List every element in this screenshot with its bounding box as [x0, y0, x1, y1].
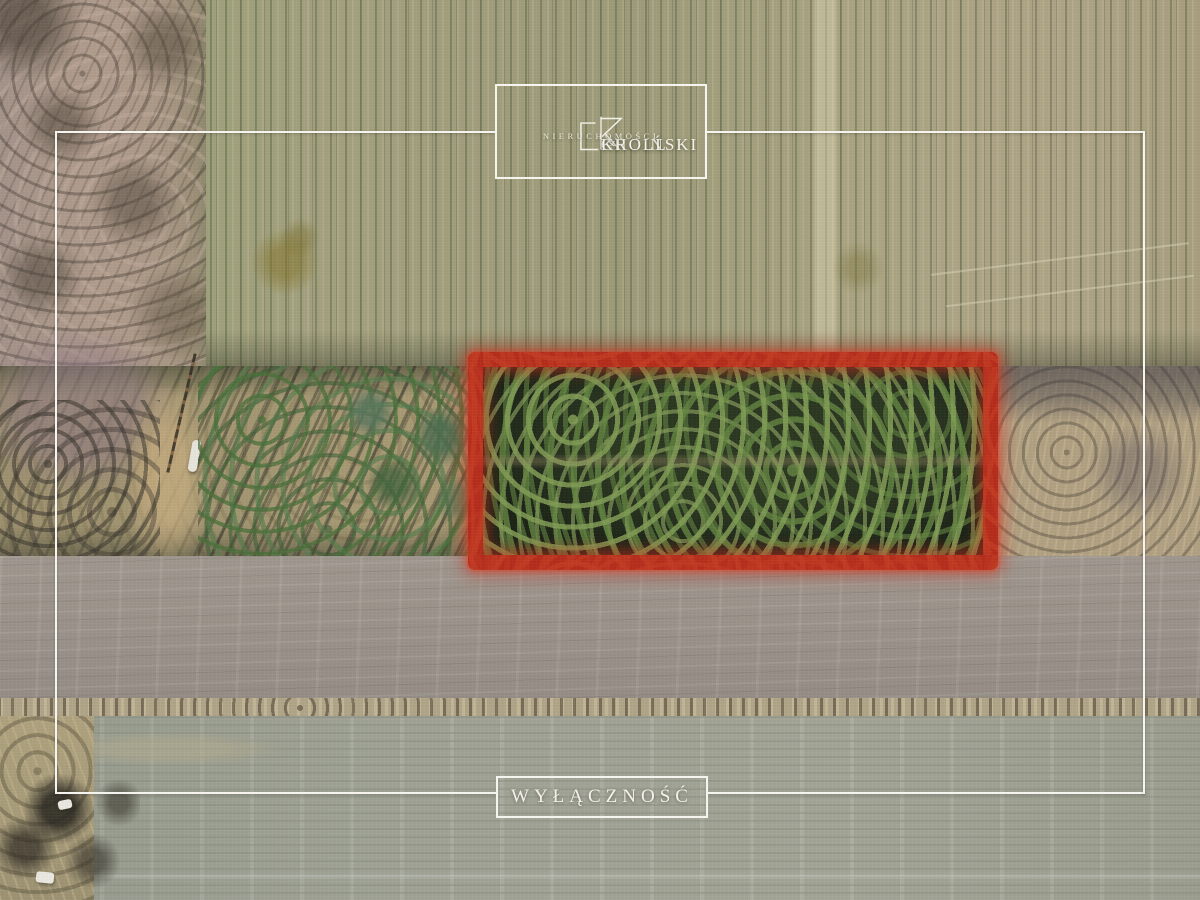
frame-line — [55, 792, 496, 794]
agency-subtitle: NIERUCHOMOŚCI — [543, 131, 659, 141]
frame-line — [707, 131, 1145, 133]
right-stubble-strip — [995, 366, 1200, 558]
white-object — [35, 871, 54, 884]
machine-track — [931, 242, 1189, 276]
machine-track — [946, 275, 1194, 307]
exclusivity-badge-label: WYŁĄCZNOŚĆ — [511, 786, 693, 808]
conifer-cluster — [330, 380, 490, 540]
stubble-boundary-strip — [0, 698, 1200, 718]
left-scrub-strip — [0, 0, 206, 368]
bare-bushes — [0, 400, 160, 560]
frame-line — [55, 131, 57, 794]
frame-line — [1143, 131, 1145, 794]
frame-line — [55, 131, 495, 133]
exclusivity-badge: WYŁĄCZNOŚĆ — [496, 776, 708, 818]
highlighted-plot-outline — [468, 352, 998, 570]
aerial-photo: CHOIŃSKI & KROLL NIERUCHOMOŚCI WYŁĄCZNOŚ… — [0, 0, 1200, 900]
plowed-field — [0, 556, 1200, 704]
agency-logo: CHOIŃSKI & KROLL NIERUCHOMOŚCI — [495, 84, 707, 179]
bottom-left-bushes — [0, 770, 140, 900]
frame-line — [708, 792, 1145, 794]
